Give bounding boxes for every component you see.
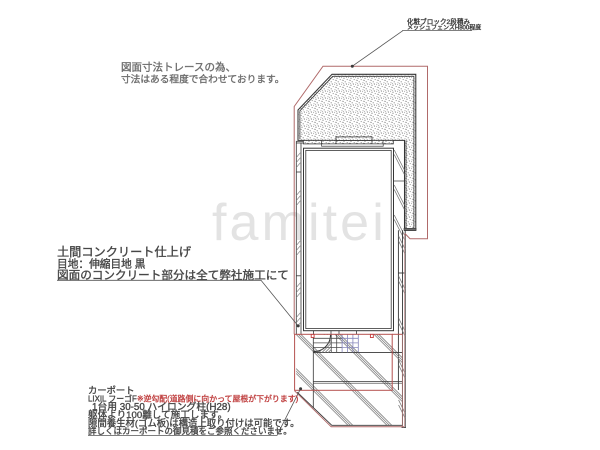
svg-text:土間コンクリート仕上げ: 土間コンクリート仕上げ bbox=[57, 245, 191, 259]
svg-text:メッシュフェンスH800程度: メッシュフェンスH800程度 bbox=[407, 24, 481, 32]
svg-text:寸法はある程度で合わせております。: 寸法はある程度で合わせております。 bbox=[121, 72, 284, 85]
svg-text:図面寸法トレースの為、: 図面寸法トレースの為、 bbox=[121, 61, 236, 74]
svg-text:famitei: famitei bbox=[212, 194, 387, 252]
svg-text:詳しくはカーポートの御見積をご参照くださいませ。: 詳しくはカーポートの御見積をご参照くださいませ。 bbox=[88, 426, 292, 436]
svg-text:図面のコンクリート部分は全て弊社施工にて: 図面のコンクリート部分は全て弊社施工にて bbox=[57, 268, 289, 282]
